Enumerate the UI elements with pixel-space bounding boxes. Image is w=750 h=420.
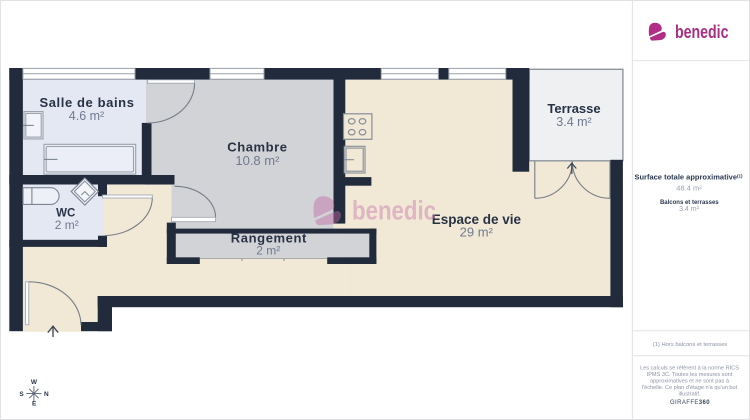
svg-text:IPMS 3C. Toutes les mesures so: IPMS 3C. Toutes les mesures sont bbox=[647, 372, 733, 378]
svg-text:Surface totale approximative(1: Surface totale approximative(1) bbox=[634, 173, 743, 182]
svg-text:W: W bbox=[31, 379, 38, 386]
svg-text:benedic: benedic bbox=[352, 196, 436, 226]
svg-text:GIRAFFE360: GIRAFFE360 bbox=[670, 400, 710, 406]
svg-text:E: E bbox=[32, 401, 37, 408]
svg-text:benedic: benedic bbox=[675, 22, 729, 42]
svg-text:48.4 m²: 48.4 m² bbox=[676, 183, 702, 192]
svg-text:2 m²: 2 m² bbox=[256, 244, 280, 258]
svg-text:4.6 m²: 4.6 m² bbox=[69, 109, 104, 123]
svg-text:approximatives et ne sont pas: approximatives et ne sont pas à bbox=[650, 379, 730, 385]
svg-text:l'échelle. Ce plan d'étage n'a: l'échelle. Ce plan d'étage n'a qu'un but bbox=[642, 385, 738, 391]
svg-text:3.4 m²: 3.4 m² bbox=[556, 115, 591, 129]
svg-text:S: S bbox=[19, 391, 24, 398]
svg-text:Terrasse: Terrasse bbox=[547, 101, 600, 116]
svg-text:Salle de bains: Salle de bains bbox=[39, 95, 134, 110]
svg-text:(1) Hors balcons et terrasses: (1) Hors balcons et terrasses bbox=[653, 342, 728, 348]
svg-text:illustratif.: illustratif. bbox=[678, 392, 701, 398]
svg-text:Les calculs se réfèrent à la n: Les calculs se réfèrent à la norme RICS bbox=[640, 365, 739, 371]
svg-text:Balcons et terrasses: Balcons et terrasses bbox=[660, 200, 719, 206]
svg-text:N: N bbox=[44, 391, 49, 398]
svg-text:29 m²: 29 m² bbox=[460, 225, 494, 240]
svg-text:3.4 m²: 3.4 m² bbox=[679, 206, 700, 213]
svg-text:10.8 m²: 10.8 m² bbox=[235, 153, 280, 168]
svg-text:2 m²: 2 m² bbox=[55, 218, 79, 232]
